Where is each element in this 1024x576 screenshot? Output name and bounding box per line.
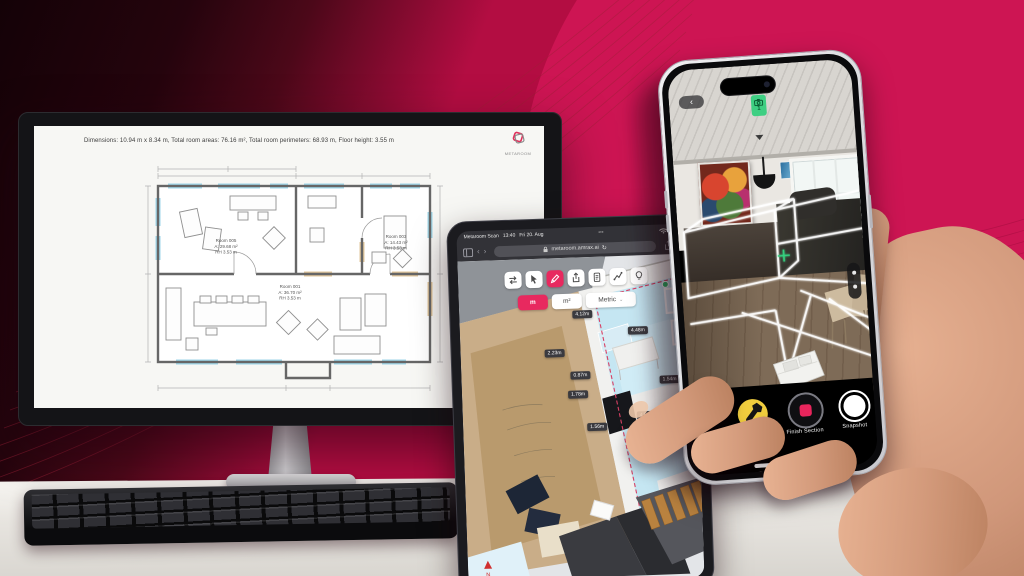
document-icon <box>591 272 602 283</box>
pencil-icon <box>549 273 560 284</box>
back-button[interactable]: ‹ <box>678 95 704 110</box>
scan-count-badge: 1 <box>751 94 767 116</box>
ar-crosshair <box>777 249 790 262</box>
snapshot-button[interactable] <box>837 389 871 423</box>
sidebar-icon[interactable] <box>463 248 473 257</box>
shutter-core <box>843 394 866 417</box>
options-pill[interactable] <box>846 262 861 299</box>
finish-section-button[interactable] <box>786 391 824 429</box>
svg-text:Room 001: Room 001 <box>280 284 301 289</box>
floorplan-drawing: Room 005 A: 29.68 m² RH 3.53 m Room 003 … <box>138 162 448 404</box>
status-date: Fri 20. Aug <box>519 232 543 239</box>
chevron-down-icon: ⌄ <box>619 296 623 302</box>
dimension-label: 4.48m <box>628 326 648 335</box>
monitor-stand-neck <box>268 424 312 480</box>
keyboard-keys <box>32 487 451 528</box>
volume-up-button <box>664 191 668 209</box>
badge-count: 1 <box>757 106 761 112</box>
compass-label: N <box>486 573 491 576</box>
dimension-label: 0.87m <box>570 371 590 380</box>
export-tool-button[interactable] <box>504 271 522 289</box>
status-time: 13:40 <box>503 233 516 239</box>
share-up-icon <box>570 272 581 283</box>
metric-label: Metric <box>598 296 616 304</box>
metric-dropdown[interactable]: Metric ⌄ <box>586 291 636 308</box>
option-dot <box>852 271 856 275</box>
share-tool-button[interactable] <box>567 269 585 287</box>
metaroom-logo-icon <box>511 131 526 145</box>
lamp-tool-button[interactable] <box>630 267 648 285</box>
option-dot <box>853 285 857 289</box>
reload-icon[interactable]: ↻ <box>602 244 607 251</box>
address-bar[interactable]: metaroom.amrax.ai ↻ <box>494 240 656 257</box>
dimension-label: 2.23m <box>545 349 565 358</box>
back-nav-icon[interactable]: ‹ <box>477 248 480 256</box>
svg-text:A: 36.70 m²: A: 36.70 m² <box>278 290 302 295</box>
keyboard <box>24 482 459 546</box>
direction-marker <box>755 135 763 141</box>
svg-text:RH 3.53 m: RH 3.53 m <box>385 246 407 251</box>
logo-text: METAROOM <box>496 151 540 156</box>
measure-tool-button[interactable] <box>609 268 627 286</box>
svg-text:Room 005: Room 005 <box>216 238 237 243</box>
document-tool-button[interactable] <box>588 268 606 286</box>
dimension-label: 1.78m <box>568 390 588 399</box>
snapshot-label: Snapshot <box>832 421 878 430</box>
scene: Dimensions: 10.94 m x 8.34 m, Total room… <box>0 0 1024 576</box>
app-logo: METAROOM <box>496 131 540 156</box>
volume-down-button <box>666 214 670 232</box>
svg-text:RH 3.53 m: RH 3.53 m <box>215 250 237 255</box>
polyline-icon <box>612 271 623 282</box>
forward-nav-icon[interactable]: › <box>484 248 487 256</box>
square-meter-button[interactable]: m² <box>552 293 583 309</box>
svg-text:Room 003: Room 003 <box>386 234 407 239</box>
finish-section-label: Finish Section <box>777 427 833 437</box>
url-text: metaroom.amrax.ai <box>551 245 599 253</box>
draw-tool-button[interactable] <box>546 270 564 288</box>
dimension-label: 4.12m <box>572 310 592 319</box>
lock-icon <box>543 246 548 252</box>
dimension-label: 1.56m <box>587 423 607 432</box>
status-app-name: Metaroom Scan <box>463 233 498 240</box>
stop-square-icon <box>799 404 812 417</box>
svg-text:A: 29.68 m²: A: 29.68 m² <box>214 244 238 249</box>
select-icon <box>528 274 539 285</box>
meter-unit-button[interactable]: m <box>518 294 549 310</box>
export-icon <box>507 275 518 286</box>
svg-text:A: 14.43 m²: A: 14.43 m² <box>384 240 408 245</box>
camera-lens <box>764 81 770 87</box>
lamp-icon <box>633 270 644 281</box>
floorplan-summary-text: Dimensions: 10.94 m x 8.34 m, Total room… <box>84 138 514 144</box>
status-menu-dots: ••• <box>547 228 654 238</box>
select-tool-button[interactable] <box>525 271 543 289</box>
svg-text:RH 3.53 m: RH 3.53 m <box>279 296 301 301</box>
